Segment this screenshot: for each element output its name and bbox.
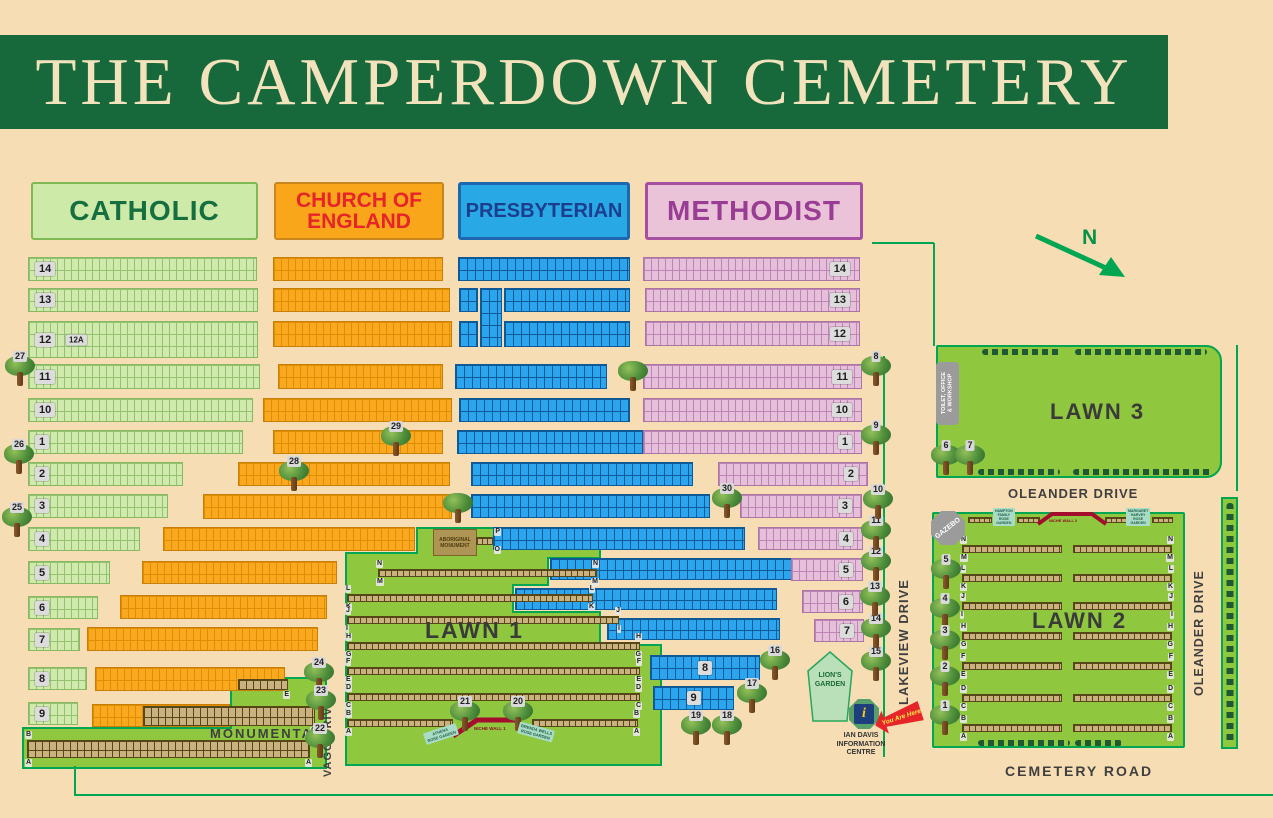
road-label-lakeview-drive: LAKEVIEW DRIVE [896,573,911,705]
presbyterian-row [480,288,502,347]
info-centre-label: IAN DAVISINFORMATIONCENTRE [831,732,891,758]
presbyterian-row [459,398,630,422]
section-header-methodist: METHODIST [645,182,863,240]
lawn1-row-nm: NM NM [378,569,597,577]
information-icon: i [849,699,879,729]
tree-27: 27 [5,355,35,388]
presbyterian-block-8: 8 [650,655,760,680]
road-line [74,766,76,796]
monumental-row-e: E [238,679,288,690]
tree-11: 11 [861,519,891,552]
shrub-row [1075,349,1207,355]
tree-8: 8 [861,355,891,388]
tree-7: 7 [955,444,985,477]
catholic-row-12: 1212A [28,321,258,358]
lawn1-row-dc: DC DC [347,693,640,701]
tree-30: 30 [712,487,742,520]
tree [443,492,473,525]
catholic-row-10: 10 [28,398,253,422]
coe-row [203,494,452,519]
road-label-oleander-drive-side: OLEANDER DRIVE [1192,576,1206,696]
lawn2-row-nm-left: NM [962,545,1062,553]
catholic-row-11: 11 [28,364,260,389]
toilet-office-workshop: TOILET, OFFICE& WORKSHOP [936,362,959,425]
catholic-row-4: 4 [28,527,140,551]
lawn3-label: LAWN 3 [1050,399,1145,425]
page-title: THE CAMPERDOWN CEMETERY [36,44,1133,121]
lions-garden-label: LION'SGARDEN [806,672,854,689]
row-12a-badge: 12A [66,334,87,345]
lawn2-row-lk-left: LK [962,574,1062,582]
tree-5: 5 [931,558,961,591]
lawn2-row-ba-left: BA [962,724,1062,732]
tree-25: 25 [2,506,32,539]
lawn2-row-fe-left: FE [962,662,1062,670]
tree-16: 16 [760,649,790,682]
tree-14: 14 [861,617,891,650]
north-label: N [1082,226,1097,250]
monumental-row-ba: BA BA [27,740,310,758]
lawn2-row-ba-right: BA [1073,724,1172,732]
tree-22: 22 [305,727,335,760]
hampton-family-rose-garden-label: HAMPTONFAMILYROSEGARDEN [993,508,1015,526]
presbyterian-row [458,257,630,281]
shrub-row [982,349,1062,355]
lawn1-row-fe: FE FE [347,667,640,675]
presbyterian-row [457,430,643,454]
presbyterian-row [504,321,630,347]
tree-3: 3 [930,629,960,662]
coe-row [87,627,318,651]
road-line [1236,345,1238,491]
coe-row [273,430,443,454]
section-header-catholic: CATHOLIC [31,182,258,240]
shrub-row [1073,469,1212,475]
tree-19: 19 [681,714,711,747]
catholic-row-13: 13 [28,288,258,312]
tree-9: 9 [861,424,891,457]
coe-row [273,288,450,312]
presbyterian-row [471,462,693,486]
tree-23: 23 [306,689,336,722]
methodist-row-1: 1 [643,430,862,454]
coe-row [142,561,337,584]
road-label-cemetery-road: CEMETERY ROAD [1005,763,1153,779]
lawn1-row-ba-right: BA [532,719,638,727]
monumental-row-dc: DC [143,706,315,726]
methodist-row-10: 10 [643,398,862,422]
niche-wall-2-label: NICHE WALL 2 [1049,518,1077,523]
catholic-row-6: 6 [28,596,98,619]
catholic-row-5: 5 [28,561,110,584]
section-header-church-of-england: CHURCH OF ENGLAND [274,182,444,240]
methodist-row-7: 7 [814,619,864,642]
methodist-row-4: 4 [758,527,863,550]
lawn2-label: LAWN 2 [1032,608,1127,634]
methodist-row-13: 13 [645,288,860,312]
tree-10: 10 [863,488,893,521]
coe-row [273,321,452,347]
title-banner: THE CAMPERDOWN CEMETERY [0,35,1168,129]
lawn2-row-lk-right: LK [1073,574,1172,582]
niche-wall-1-label: NICHE WALL 1 [474,726,506,731]
presbyterian-row [504,288,630,312]
lawn2-row-fe-right: FE [1073,662,1172,670]
camperdown-cemetery-map: { "title": "THE CAMPERDOWN CEMETERY", "n… [0,0,1273,818]
section-header-presbyterian: PRESBYTERIAN [458,182,630,240]
lawn2-row-dc-right: DC [1073,694,1172,702]
methodist-row-2: 2 [718,462,868,486]
lawn2-row-dc-left: DC [962,694,1062,702]
catholic-row-8: 8 [28,667,87,690]
methodist-row-3: 3 [740,494,862,518]
methodist-row-5: 5 [791,558,863,581]
tree-17: 17 [737,682,767,715]
catholic-row-2: 2 [28,462,183,486]
methodist-row-11: 11 [643,364,862,389]
tree-2: 2 [930,665,960,698]
lawn1-row-ba-left: BA [347,719,453,727]
tree [618,360,648,393]
presbyterian-row [459,288,478,312]
oleander-hedge [1221,497,1238,749]
catholic-row-1: 1 [28,430,243,454]
road-line [933,243,935,346]
shrub-row [978,740,1070,746]
lawn2-row-nm-right: NM [1073,545,1172,553]
coe-row [120,595,327,619]
tree-12: 12 [861,550,891,583]
methodist-row-12: 12 [645,321,860,346]
lawn2-top-stub [968,517,992,523]
shrub-row [978,469,1060,475]
tree-13: 13 [860,585,890,618]
tree-28: 28 [279,460,309,493]
presbyterian-block-9: 9 [653,686,734,710]
catholic-row-3: 3 [28,494,168,518]
coe-row [238,462,450,486]
presbyterian-row [493,527,745,550]
lawn2-top-stub [1152,517,1173,523]
presbyterian-row [607,618,780,640]
tree-15: 15 [861,650,891,683]
aboriginal-monument: ABORIGINALMONUMENT [433,529,477,556]
catholic-row-9: 9 [28,702,78,725]
methodist-row-14: 14 [643,257,860,281]
shrub-row [1075,740,1122,746]
tree-29: 29 [381,425,411,458]
road-line-cemetery [74,794,1273,796]
tree-1: 1 [930,704,960,737]
coe-row [273,257,443,281]
catholic-row-14: 14 [28,257,257,281]
tree-26: 26 [4,443,34,476]
tree-18: 18 [712,714,742,747]
catholic-row-7: 7 [28,628,80,651]
methodist-row-6: 6 [802,590,863,613]
presbyterian-row [455,364,607,389]
lawn1-row-po: P O [476,537,493,545]
lawn1-label: LAWN 1 [425,617,524,644]
presbyterian-row [471,494,710,518]
lawn1-row-lk: LK LK [347,594,593,602]
coe-row [163,527,415,551]
coe-row [278,364,443,389]
coe-row [263,398,452,422]
road-label-oleander-drive: OLEANDER DRIVE [1008,486,1138,501]
margaret-harvey-rose-garden-label: MARGARETHARVEYROSEGARDEN [1126,508,1150,526]
presbyterian-row [459,321,478,347]
road-line [872,242,934,244]
